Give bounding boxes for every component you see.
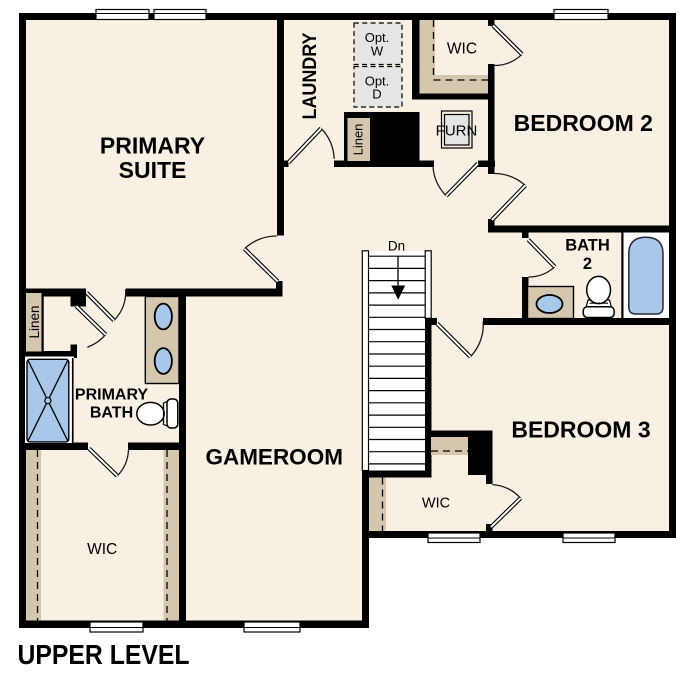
svg-text:D: D [372,87,381,102]
svg-text:WIC: WIC [87,541,117,558]
svg-text:PRIMARY: PRIMARY [75,387,149,404]
svg-text:BEDROOM 3: BEDROOM 3 [511,417,650,443]
svg-text:Dn: Dn [388,239,405,254]
svg-text:2: 2 [583,255,592,273]
svg-text:Linen: Linen [27,305,42,338]
svg-text:SUITE: SUITE [119,157,187,183]
svg-text:BATH: BATH [565,237,610,255]
svg-text:W: W [371,44,384,59]
svg-text:WIC: WIC [422,496,450,512]
svg-text:PRIMARY: PRIMARY [100,133,205,159]
svg-text:FURN: FURN [436,123,478,140]
svg-text:GAMEROOM: GAMEROOM [205,445,343,470]
svg-text:UPPER LEVEL: UPPER LEVEL [18,639,190,670]
svg-text:BEDROOM 2: BEDROOM 2 [514,110,653,136]
svg-text:Linen: Linen [351,124,366,156]
svg-text:LAUNDRY: LAUNDRY [299,33,321,120]
svg-text:WIC: WIC [447,41,477,58]
svg-text:BATH: BATH [90,405,133,422]
